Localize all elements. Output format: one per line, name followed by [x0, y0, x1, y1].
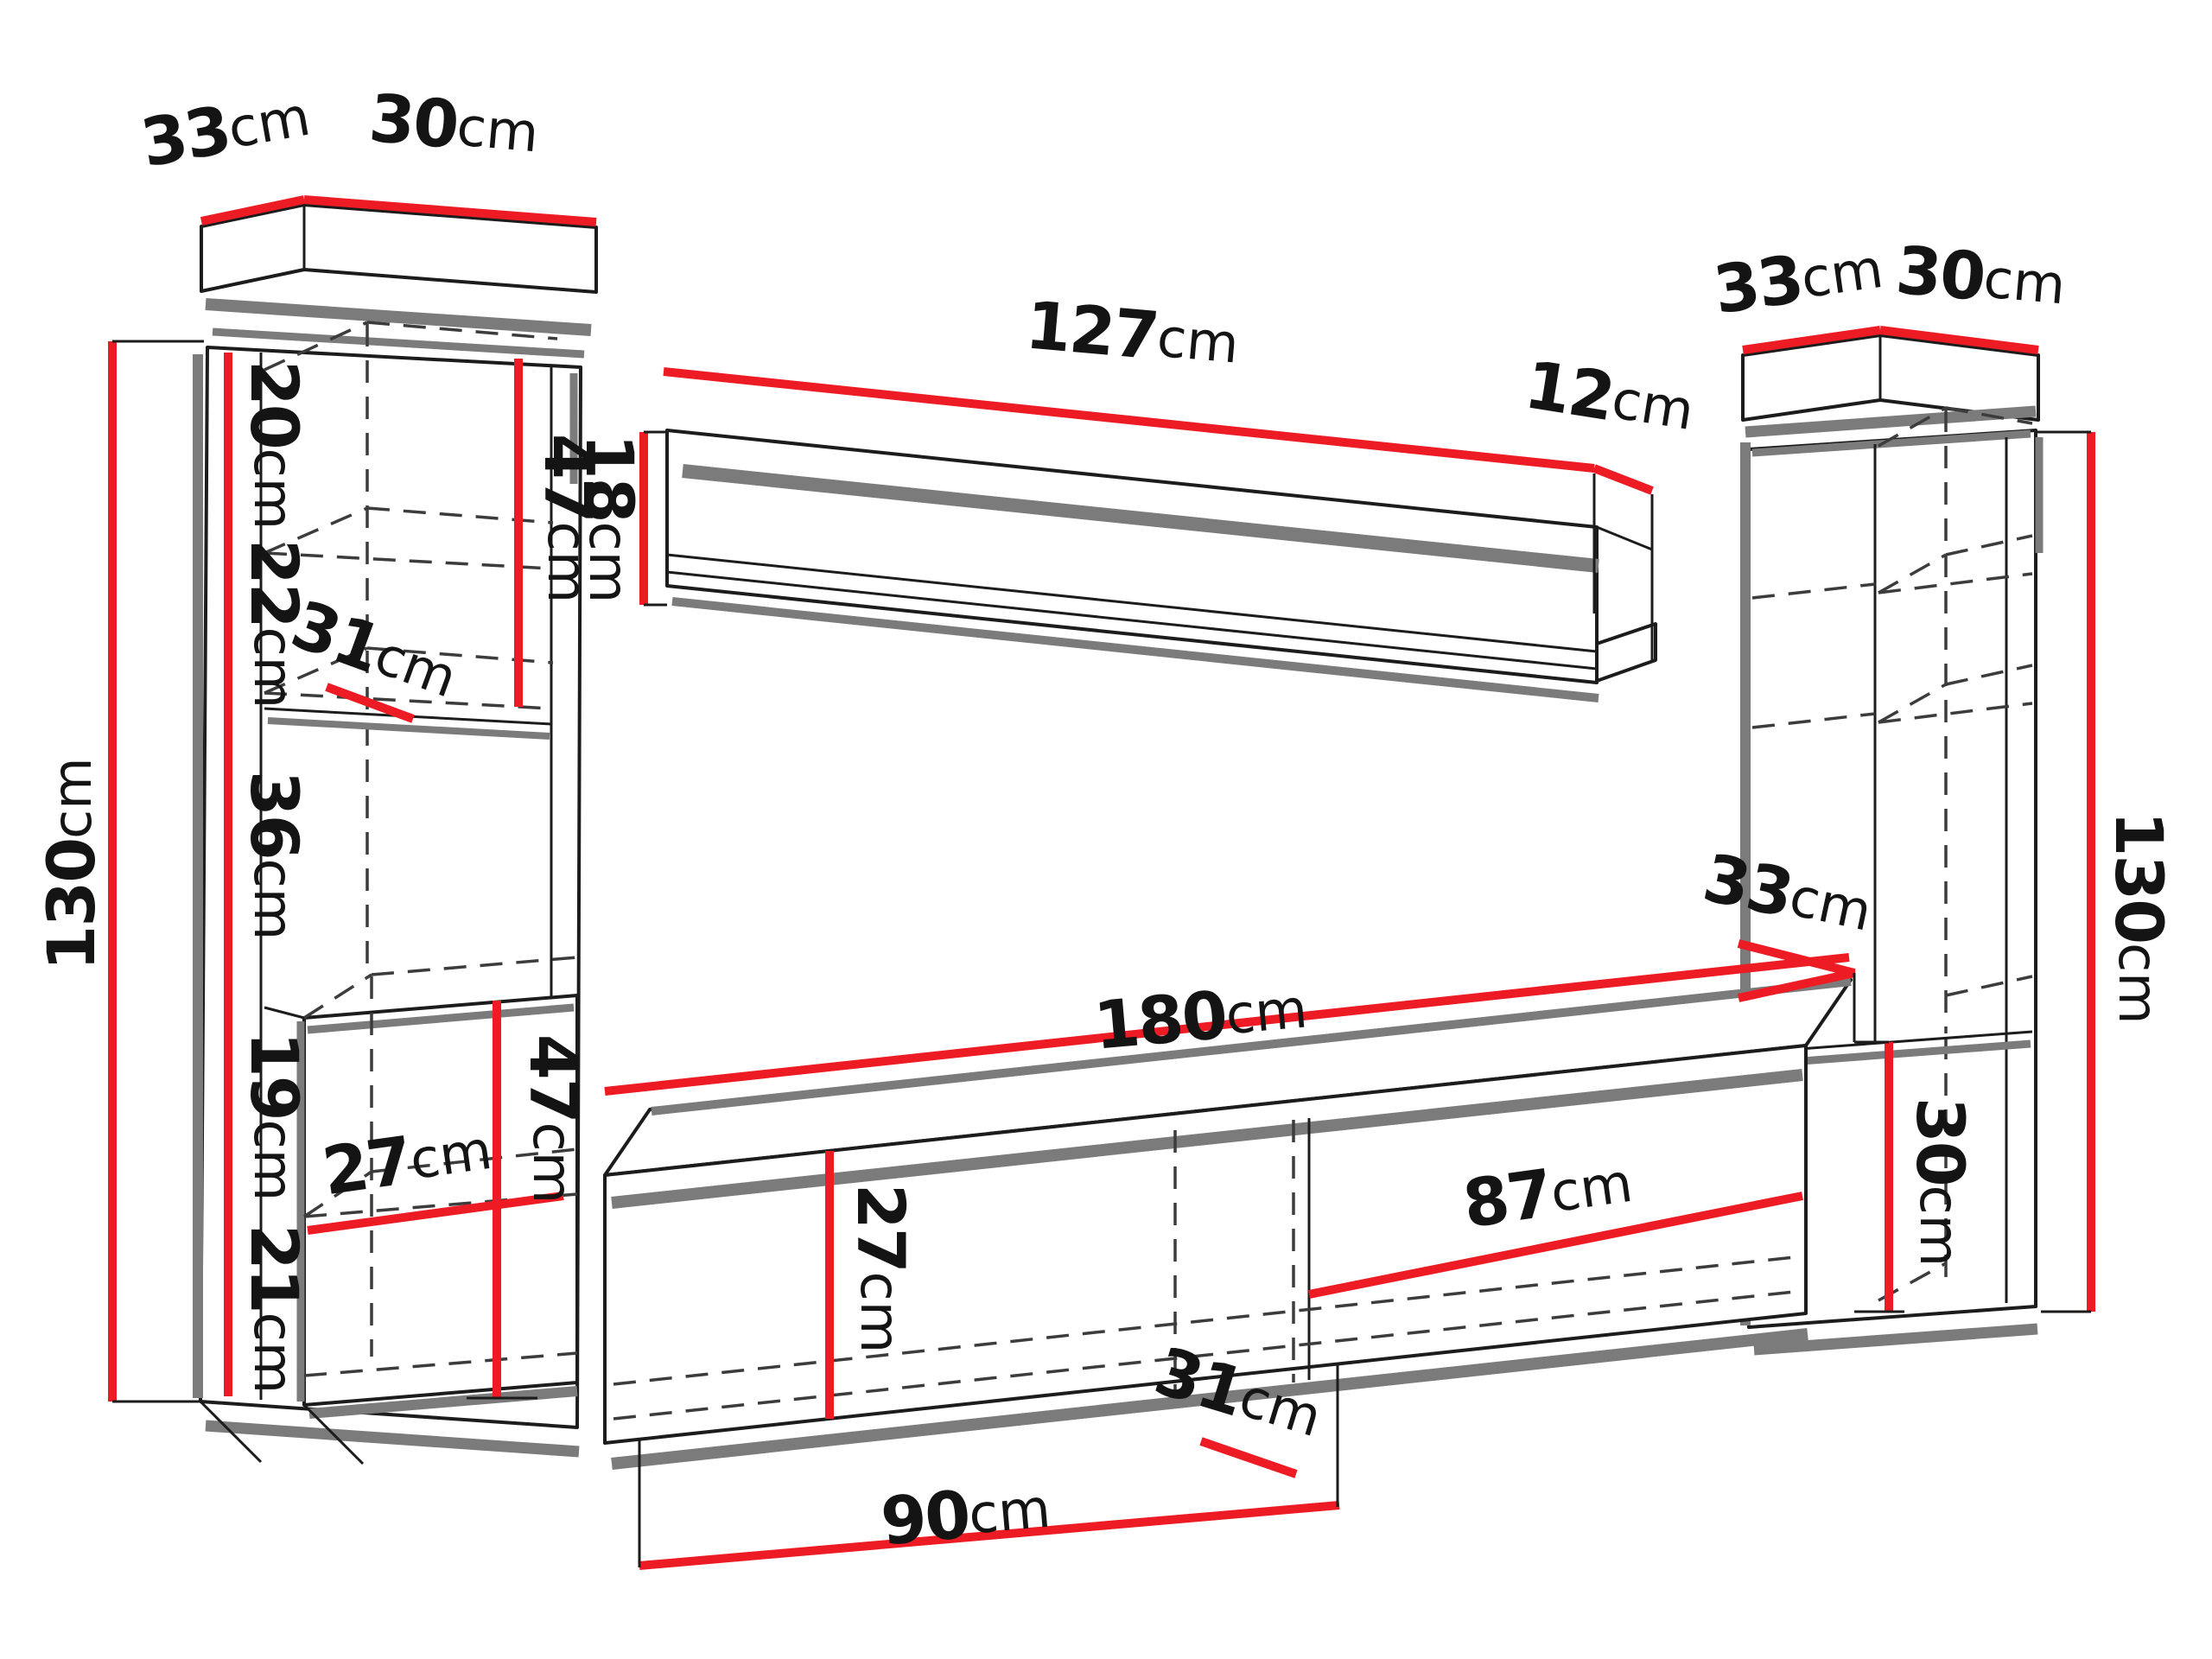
dim-left-cabinet-cell3-label: 36cm	[236, 771, 313, 940]
dim-right-cabinet-ticks	[2036, 432, 2091, 1312]
dim-left-cabinet-height-label: 130cm	[33, 757, 110, 970]
dim-left-cabinet-cell5-label: 21cm	[236, 1224, 313, 1394]
dim-left-cabinet-top-depth-label: 33cm	[136, 77, 316, 182]
dim-tv-stand-left-section-label: 90cm	[878, 1469, 1053, 1560]
wall-shelf	[667, 430, 1656, 698]
dim-niche-height-label: 30cm	[1902, 1097, 1979, 1267]
dim-wall-shelf-width-label: 127cm	[1023, 286, 1243, 381]
wall-shelf-right-lip	[1597, 624, 1656, 681]
furniture-dimension-diagram: 33cm 30cm 130cm 20cm 22cm 31cm 36cm 19cm…	[0, 0, 2212, 1659]
dim-left-cabinet-cell1-label: 20cm	[236, 360, 313, 530]
dim-right-cabinet-top-depth-label: 33cm	[1709, 229, 1888, 328]
dim-wall-shelf-height-label: 18cm	[571, 434, 648, 603]
dim-left-cabinet-lower-section-label: 47cm	[515, 1034, 592, 1204]
diagram-canvas: 33cm 30cm 130cm 20cm 22cm 31cm 36cm 19cm…	[0, 0, 2212, 1659]
dim-wall-shelf-depth-label: 12cm	[1520, 346, 1700, 448]
dim-right-cabinet-top-width-label: 30cm	[1893, 232, 2069, 323]
dim-tv-stand-inner-depth-line	[1201, 1441, 1296, 1474]
dim-tv-stand-front-height-label: 27cm	[842, 1184, 919, 1353]
dim-right-cabinet-height-label: 130cm	[2101, 810, 2177, 1024]
dim-wall-shelf-depth-line	[1594, 468, 1652, 491]
left-cabinet-bottom-shadow	[206, 1426, 579, 1452]
dim-left-cabinet-top-width-label: 30cm	[366, 79, 542, 171]
left-cabinet-crown-shadow	[206, 304, 591, 330]
dim-left-cabinet-cell4-label: 19cm	[236, 1032, 313, 1201]
